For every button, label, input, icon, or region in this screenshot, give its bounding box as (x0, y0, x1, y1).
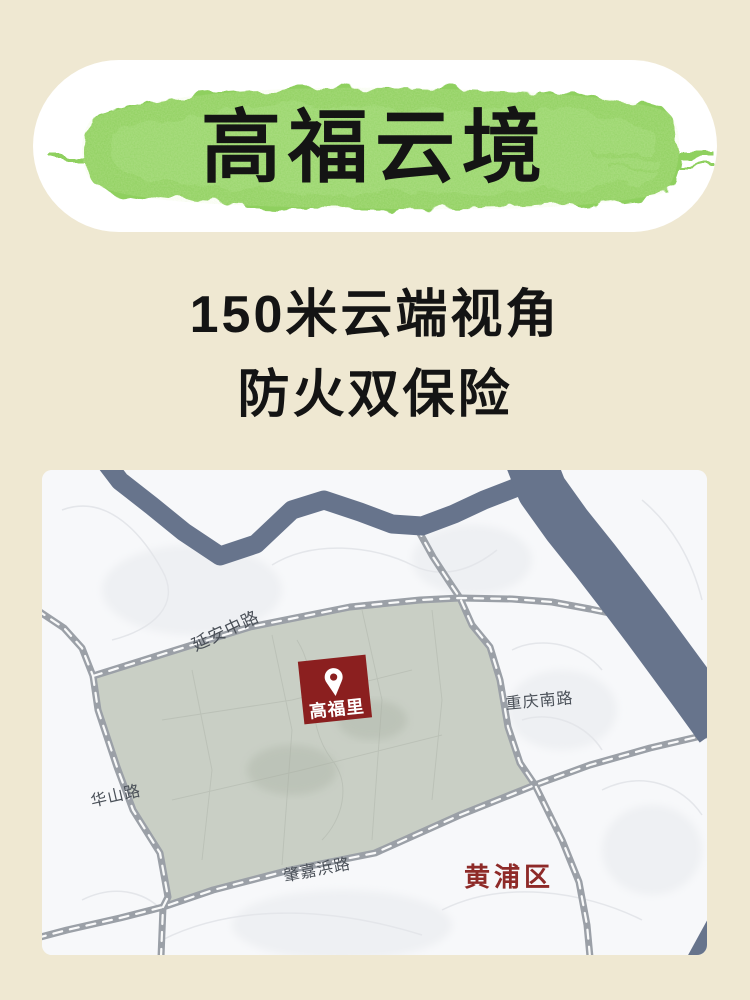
location-map: 延安中路 华山路 重庆南路 肇嘉浜路 黄浦区 高福里 (42, 470, 707, 955)
map-graphic: 延安中路 华山路 重庆南路 肇嘉浜路 黄浦区 高福里 (42, 470, 707, 955)
subtitle-line-2: 防火双保险 (0, 352, 750, 427)
page-background: { "banner": { "title": "高福云境", "brush_co… (0, 0, 750, 1000)
pin-marker: 高福里 (298, 655, 372, 725)
district-label: 黄浦区 (464, 862, 554, 892)
title-banner: 高福云境 (33, 60, 717, 232)
page-title: 高福云境 (201, 108, 549, 188)
subtitle-line-1: 150米云端视角 (0, 272, 750, 347)
